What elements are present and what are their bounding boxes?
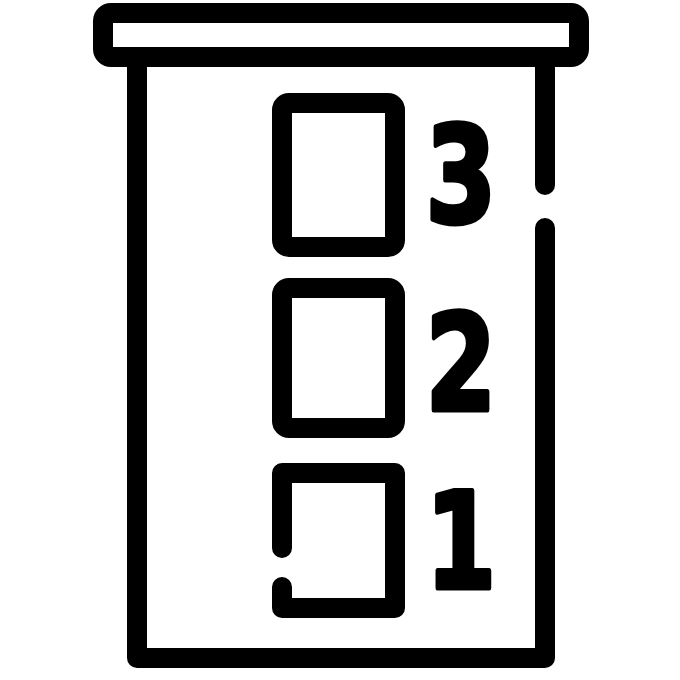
level-2-label: 2 — [426, 286, 497, 441]
level-3-label: 3 — [426, 98, 497, 253]
level-1-label: 1 — [426, 464, 497, 619]
level-1-box-icon — [282, 473, 395, 608]
level-2-box-icon — [282, 288, 395, 428]
numbered-container-icon: 3 2 1 — [0, 0, 680, 680]
level-3-box-icon — [282, 103, 395, 247]
container-lid-icon — [103, 13, 579, 57]
level-labels: 3 2 1 — [426, 98, 497, 619]
container-outline: 3 2 1 — [103, 13, 579, 658]
icon-canvas: 3 2 1 — [0, 0, 680, 680]
